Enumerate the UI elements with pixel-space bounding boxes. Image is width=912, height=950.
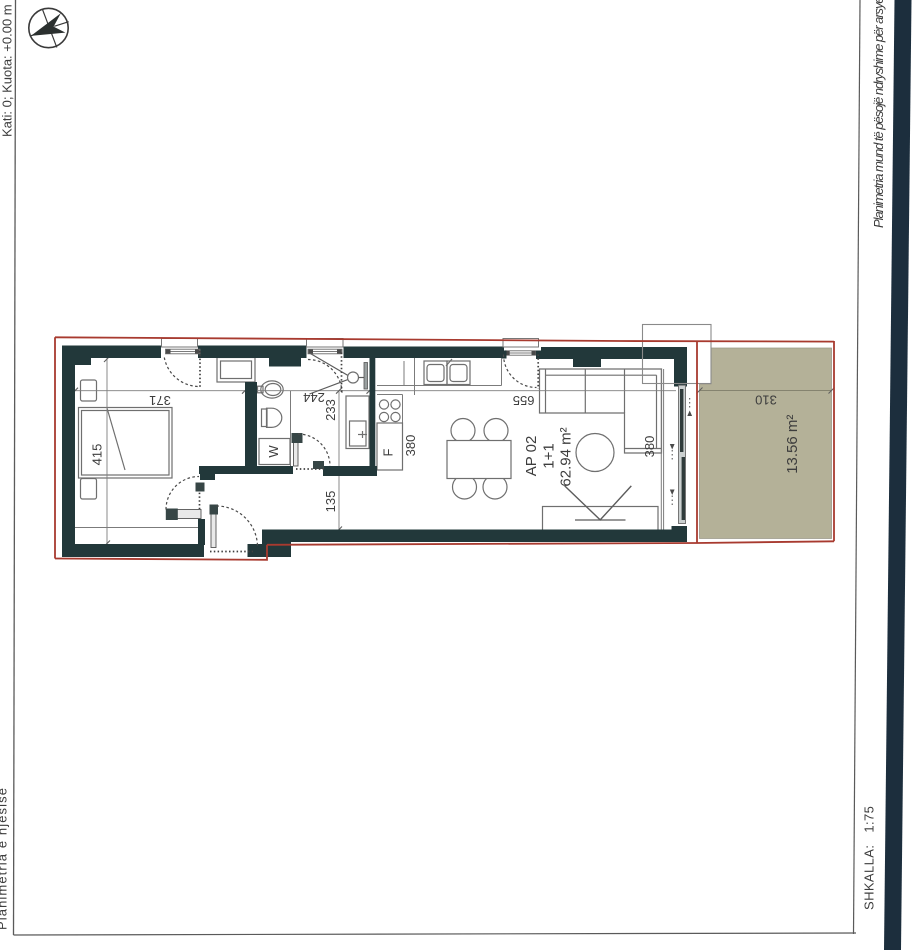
svg-text:Planimetria e njësisë: Planimetria e njësisë (0, 787, 10, 930)
svg-text:13.56 m²: 13.56 m² (784, 415, 801, 474)
svg-text:F: F (381, 448, 396, 456)
svg-text:233: 233 (323, 399, 338, 421)
svg-text:380: 380 (642, 436, 657, 458)
svg-text:Planimetria mund të pësojë ndr: Planimetria mund të pësojë ndryshime për… (871, 0, 886, 228)
svg-text:W: W (266, 445, 281, 458)
svg-text:310: 310 (755, 393, 777, 408)
svg-text:AP 02: AP 02 (523, 436, 540, 477)
svg-text:655: 655 (513, 393, 535, 408)
svg-text:SHKALLA: 1:75: SHKALLA: 1:75 (862, 806, 877, 910)
svg-text:Kati: 0; Kuota: +0.00 m: Kati: 0; Kuota: +0.00 m (0, 4, 15, 137)
svg-text:244: 244 (303, 390, 325, 405)
svg-text:371: 371 (149, 393, 171, 408)
svg-text:1+1: 1+1 (541, 443, 558, 468)
svg-text:62.94 m²: 62.94 m² (558, 427, 575, 486)
svg-text:135: 135 (323, 491, 338, 513)
svg-text:415: 415 (90, 444, 105, 466)
svg-text:380: 380 (403, 435, 418, 457)
